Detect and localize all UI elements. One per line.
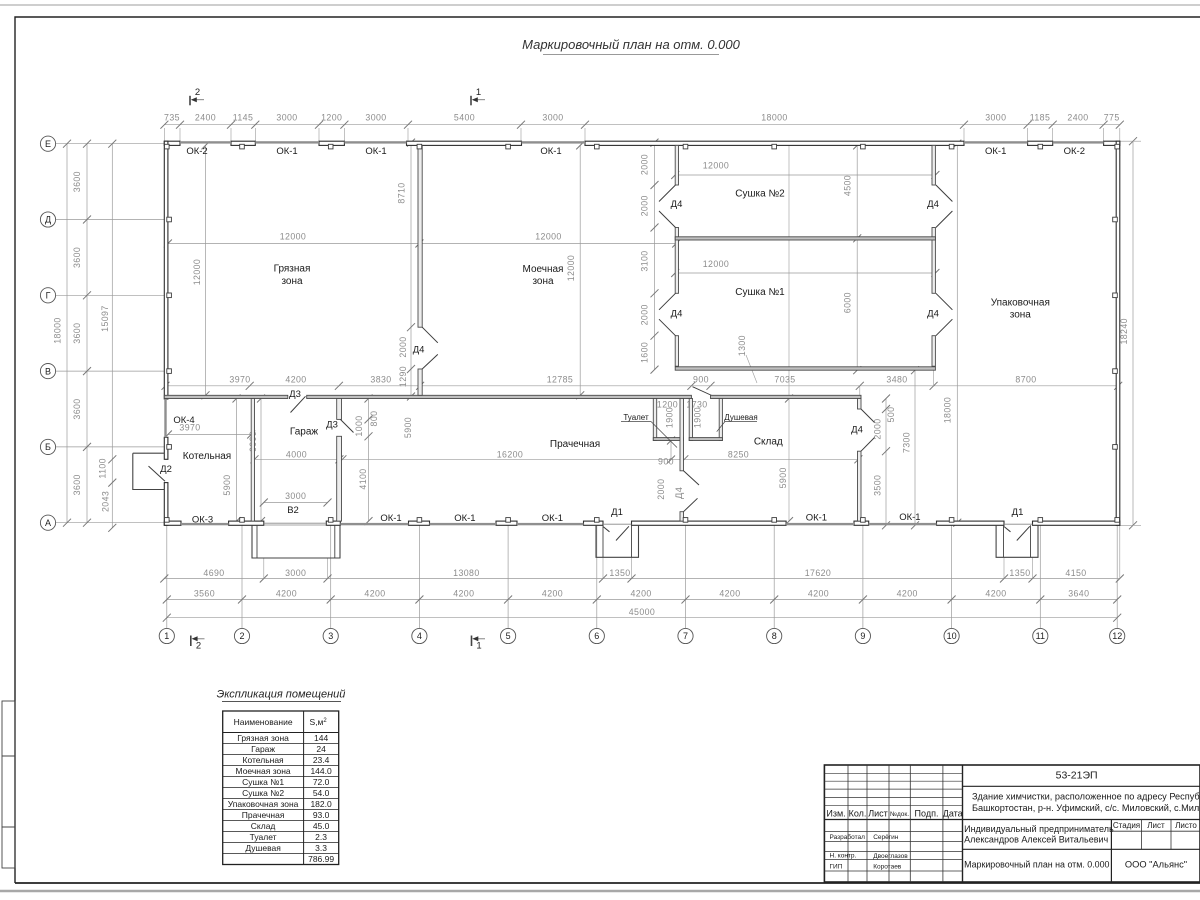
svg-text:53-21ЭП: 53-21ЭП (1056, 769, 1098, 781)
svg-text:4200: 4200 (985, 588, 1006, 598)
svg-text:24: 24 (316, 744, 326, 754)
svg-text:Д1: Д1 (1012, 507, 1024, 518)
svg-text:8250: 8250 (728, 449, 749, 459)
svg-text:2000: 2000 (640, 304, 650, 325)
svg-text:Маркировочный план на отм. 0.0: Маркировочный план на отм. 0.000 (522, 37, 741, 52)
svg-text:2000: 2000 (656, 479, 666, 500)
svg-text:2.3: 2.3 (315, 832, 327, 842)
svg-text:Склад: Склад (754, 437, 783, 448)
svg-text:зона: зона (281, 276, 303, 287)
svg-text:45000: 45000 (629, 607, 655, 617)
svg-text:Листо: Листо (1175, 821, 1197, 830)
svg-text:Башкортостан, р-н. Уфимский, с: Башкортостан, р-н. Уфимский, с/с. Миловс… (972, 803, 1200, 813)
svg-text:18000: 18000 (53, 317, 63, 343)
svg-text:2043: 2043 (101, 491, 111, 512)
svg-text:3000: 3000 (985, 113, 1006, 123)
svg-text:7: 7 (683, 631, 688, 641)
svg-text:18000: 18000 (761, 113, 787, 123)
svg-text:12785: 12785 (547, 374, 573, 384)
svg-text:Котельная: Котельная (243, 755, 285, 765)
svg-text:Д4: Д4 (927, 309, 939, 320)
svg-text:Упаковочная: Упаковочная (991, 298, 1050, 309)
svg-text:23.4: 23.4 (313, 755, 330, 765)
svg-text:3600: 3600 (72, 247, 82, 268)
svg-text:12000: 12000 (703, 161, 729, 171)
svg-text:Котельная: Котельная (183, 451, 231, 462)
svg-text:2: 2 (195, 87, 200, 98)
svg-text:4150: 4150 (1065, 568, 1086, 578)
svg-text:Склад: Склад (251, 821, 276, 831)
svg-text:9: 9 (860, 631, 865, 641)
svg-text:4200: 4200 (276, 588, 297, 598)
svg-text:Д4: Д4 (674, 487, 685, 500)
svg-text:3000: 3000 (542, 113, 563, 123)
svg-text:900: 900 (693, 374, 709, 384)
svg-text:3000: 3000 (285, 491, 306, 501)
svg-text:1: 1 (476, 641, 481, 652)
svg-text:18240: 18240 (1119, 318, 1129, 344)
svg-text:Сушка №2: Сушка №2 (735, 189, 785, 200)
svg-text:6000: 6000 (843, 292, 853, 313)
svg-text:Подп.: Подп. (915, 809, 939, 819)
svg-text:Изм.: Изм. (826, 809, 845, 819)
svg-text:12000: 12000 (280, 232, 306, 242)
svg-text:Прачечная: Прачечная (550, 439, 600, 450)
svg-text:5900: 5900 (403, 417, 413, 438)
svg-text:16200: 16200 (497, 449, 523, 459)
svg-text:45.0: 45.0 (313, 821, 330, 831)
svg-text:Двоеглазов: Двоеглазов (873, 853, 908, 860)
svg-text:54.0: 54.0 (313, 788, 330, 798)
svg-text:Д3: Д3 (326, 420, 338, 431)
svg-text:3600: 3600 (72, 171, 82, 192)
svg-text:Душевая: Душевая (724, 413, 757, 422)
svg-text:ОК-4: ОК-4 (173, 415, 194, 426)
svg-text:Кол.: Кол. (849, 809, 867, 819)
svg-text:735: 735 (164, 113, 180, 123)
svg-text:3: 3 (328, 631, 333, 641)
svg-text:12000: 12000 (192, 259, 202, 285)
svg-text:3000: 3000 (276, 113, 297, 123)
svg-text:4690: 4690 (203, 568, 224, 578)
svg-text:4: 4 (417, 631, 422, 641)
svg-text:Грязная зона: Грязная зона (237, 733, 289, 743)
svg-text:1350: 1350 (609, 568, 630, 578)
svg-text:Моечная: Моечная (523, 264, 564, 275)
svg-text:1: 1 (476, 87, 481, 98)
svg-text:Д1: Д1 (611, 507, 623, 518)
svg-text:Здание химчистки, расположенн: Здание химчистки, расположенное по адрес… (972, 791, 1200, 801)
svg-text:Туалет: Туалет (623, 413, 649, 422)
svg-text:2000: 2000 (640, 195, 650, 216)
svg-text:Сушка №1: Сушка №1 (242, 777, 284, 787)
svg-text:5900: 5900 (222, 474, 232, 495)
svg-text:2000: 2000 (398, 336, 408, 357)
svg-text:1145: 1145 (233, 113, 254, 123)
svg-text:1900: 1900 (665, 407, 675, 428)
svg-text:12000: 12000 (566, 255, 576, 281)
svg-text:786.99: 786.99 (308, 854, 334, 864)
svg-text:4000: 4000 (286, 449, 307, 459)
svg-text:775: 775 (1104, 113, 1120, 123)
svg-text:В2: В2 (287, 505, 299, 516)
svg-text:4200: 4200 (631, 588, 652, 598)
svg-text:17620: 17620 (805, 568, 831, 578)
svg-text:ОК-2: ОК-2 (1064, 146, 1085, 157)
svg-text:12000: 12000 (535, 232, 561, 242)
svg-text:2: 2 (239, 631, 244, 641)
svg-text:ОК-1: ОК-1 (276, 146, 297, 157)
svg-text:2000: 2000 (640, 154, 650, 175)
svg-text:1600: 1600 (640, 342, 650, 363)
svg-text:Д2: Д2 (160, 464, 172, 475)
svg-text:1900: 1900 (693, 407, 703, 428)
svg-text:7035: 7035 (774, 374, 795, 384)
svg-text:Стадия: Стадия (1113, 821, 1140, 830)
svg-text:1185: 1185 (1030, 113, 1051, 123)
svg-text:Туалет: Туалет (250, 832, 277, 842)
svg-text:Д4: Д4 (413, 344, 425, 355)
svg-text:Б: Б (45, 442, 51, 452)
svg-text:ООО "Альянс": ООО "Альянс" (1125, 860, 1187, 870)
svg-text:Д4: Д4 (671, 199, 683, 210)
svg-text:144.0: 144.0 (310, 766, 332, 776)
svg-text:6: 6 (594, 631, 599, 641)
svg-text:11: 11 (1036, 631, 1045, 641)
svg-text:3500: 3500 (873, 475, 883, 496)
svg-text:1000: 1000 (354, 415, 364, 436)
svg-text:Маркировочный план на отм. 0.0: Маркировочный план на отм. 0.000 (964, 860, 1109, 870)
svg-text:10: 10 (947, 631, 957, 641)
svg-text:Д4: Д4 (851, 425, 863, 436)
svg-text:Наименование: Наименование (234, 717, 293, 727)
svg-text:15097: 15097 (100, 305, 110, 331)
svg-text:8710: 8710 (397, 182, 407, 203)
svg-text:8700: 8700 (1015, 374, 1036, 384)
svg-text:Упаковочная зона: Упаковочная зона (228, 799, 299, 809)
svg-text:Коротаев: Коротаев (873, 863, 902, 870)
svg-text:13080: 13080 (453, 568, 479, 578)
svg-text:5900: 5900 (778, 467, 788, 488)
svg-text:3480: 3480 (886, 374, 907, 384)
svg-text:Сушка №1: Сушка №1 (735, 287, 785, 298)
svg-text:4200: 4200 (285, 374, 306, 384)
svg-text:Лист: Лист (868, 809, 888, 819)
svg-text:ОК-1: ОК-1 (380, 513, 401, 524)
svg-text:ОК-1: ОК-1 (454, 513, 475, 524)
svg-text:8: 8 (772, 631, 777, 641)
svg-text:Лист: Лист (1147, 821, 1165, 830)
svg-text:ОК-1: ОК-1 (985, 146, 1006, 157)
svg-text:Дата: Дата (943, 809, 963, 819)
svg-text:Гараж: Гараж (290, 426, 319, 437)
svg-text:900: 900 (658, 457, 674, 467)
svg-text:1100: 1100 (98, 458, 108, 479)
svg-text:5: 5 (506, 631, 511, 641)
svg-text:12: 12 (1112, 631, 1122, 641)
svg-text:4200: 4200 (364, 588, 385, 598)
svg-text:3830: 3830 (370, 374, 391, 384)
svg-text:3000: 3000 (365, 113, 386, 123)
svg-text:ОК-1: ОК-1 (899, 512, 920, 523)
svg-text:А: А (45, 518, 51, 528)
svg-text:В: В (45, 366, 51, 376)
svg-text:Д: Д (45, 215, 51, 225)
svg-text:ОК-1: ОК-1 (540, 146, 561, 157)
svg-text:3100: 3100 (640, 250, 650, 271)
svg-text:Разработал: Разработал (830, 833, 866, 841)
svg-text:3600: 3600 (72, 323, 82, 344)
svg-text:Д4: Д4 (671, 309, 683, 320)
svg-text:Гараж: Гараж (251, 744, 275, 754)
svg-text:зона: зона (1010, 310, 1032, 321)
svg-text:3970: 3970 (229, 374, 250, 384)
svg-text:Г: Г (46, 291, 51, 301)
svg-text:Экспликация помещений: Экспликация помещений (217, 689, 346, 701)
svg-text:3600: 3600 (72, 474, 82, 495)
svg-text:Н. контр.: Н. контр. (830, 852, 857, 859)
svg-text:3560: 3560 (194, 588, 215, 598)
svg-text:№док.: №док. (890, 811, 909, 818)
svg-text:Д3: Д3 (289, 389, 301, 400)
svg-text:ГИП: ГИП (830, 863, 843, 870)
svg-text:Душевая: Душевая (245, 843, 281, 853)
svg-text:1200: 1200 (321, 113, 342, 123)
svg-text:93.0: 93.0 (313, 810, 330, 820)
svg-text:4200: 4200 (719, 588, 740, 598)
svg-text:18000: 18000 (943, 397, 953, 423)
svg-text:3.3: 3.3 (315, 843, 327, 853)
svg-text:1350: 1350 (1009, 568, 1030, 578)
svg-text:ОК-3: ОК-3 (192, 515, 213, 526)
svg-text:2400: 2400 (195, 113, 216, 123)
svg-text:2: 2 (196, 641, 201, 652)
svg-text:Александров Алексей Витальевич: Александров Алексей Витальевич (964, 835, 1108, 845)
svg-text:12000: 12000 (703, 259, 729, 269)
svg-text:Д4: Д4 (927, 199, 939, 210)
svg-text:1: 1 (164, 631, 169, 641)
svg-text:72.0: 72.0 (313, 777, 330, 787)
svg-text:3000: 3000 (285, 568, 306, 578)
svg-text:4200: 4200 (453, 588, 474, 598)
svg-text:2400: 2400 (1067, 113, 1088, 123)
svg-text:144: 144 (314, 733, 328, 743)
svg-text:Е: Е (45, 139, 51, 149)
svg-text:зона: зона (532, 276, 554, 287)
svg-text:ОК-2: ОК-2 (186, 146, 207, 157)
svg-text:4100: 4100 (358, 468, 368, 489)
svg-text:ОК-1: ОК-1 (806, 512, 827, 523)
svg-text:Индивидуальный предприниматель: Индивидуальный предприниматель (964, 824, 1114, 834)
svg-text:3640: 3640 (1068, 588, 1089, 598)
svg-text:Серёгин: Серёгин (873, 834, 899, 841)
svg-text:7300: 7300 (902, 432, 912, 453)
svg-text:182.0: 182.0 (310, 799, 332, 809)
svg-text:3600: 3600 (72, 398, 82, 419)
svg-text:ОК-1: ОК-1 (365, 146, 386, 157)
svg-text:500: 500 (886, 407, 896, 423)
svg-text:800: 800 (369, 411, 379, 427)
svg-text:Прачечная: Прачечная (242, 810, 285, 820)
svg-text:4200: 4200 (897, 588, 918, 598)
svg-text:ОК-1: ОК-1 (542, 513, 563, 524)
svg-text:Моечная зона: Моечная зона (236, 766, 291, 776)
svg-text:4200: 4200 (542, 588, 563, 598)
svg-text:1290: 1290 (398, 366, 408, 387)
svg-text:4500: 4500 (843, 175, 853, 196)
svg-text:Грязная: Грязная (274, 264, 311, 275)
svg-text:1300: 1300 (737, 335, 747, 356)
svg-text:4200: 4200 (808, 588, 829, 598)
svg-text:5400: 5400 (454, 113, 475, 123)
svg-text:Сушка №2: Сушка №2 (242, 788, 284, 798)
